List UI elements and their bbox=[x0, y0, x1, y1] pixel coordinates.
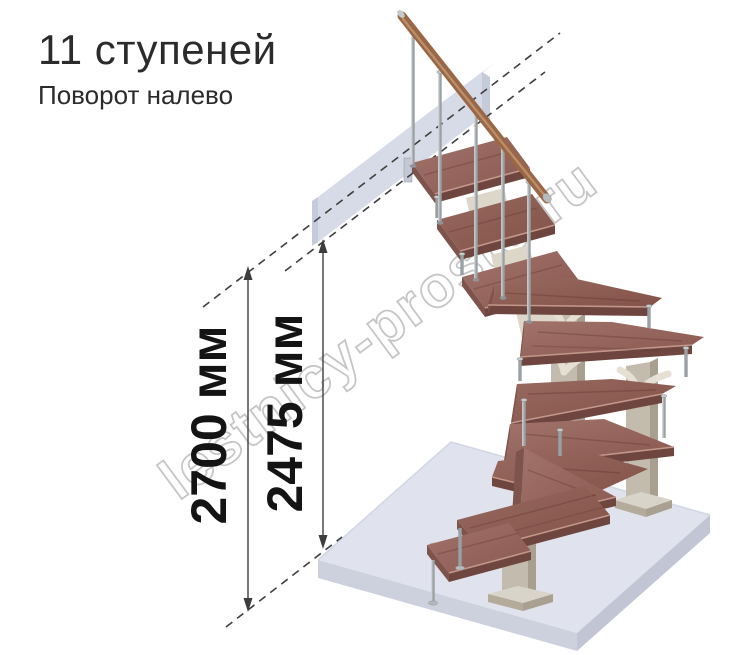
dashed-line-lower bbox=[226, 537, 342, 627]
beam-mounting-plate bbox=[404, 158, 412, 182]
arrowhead-up bbox=[244, 266, 253, 280]
arrowhead-down bbox=[244, 598, 253, 612]
arrowhead-up bbox=[319, 239, 328, 253]
tread-7 bbox=[520, 321, 704, 366]
staircase-diagram-page: lestnicy-prosto.ru 2700 мм bbox=[0, 0, 743, 655]
tread-8 bbox=[488, 278, 662, 316]
dimension-label-2700: 2700 мм bbox=[181, 325, 237, 524]
dimension-label-2475: 2475 мм bbox=[257, 313, 313, 512]
diagram-title: 11 ступеней bbox=[38, 26, 277, 74]
title-block: 11 ступеней Поворот налево bbox=[38, 26, 277, 111]
diagram-subtitle: Поворот налево bbox=[38, 80, 277, 111]
arrowhead-down bbox=[319, 535, 328, 549]
